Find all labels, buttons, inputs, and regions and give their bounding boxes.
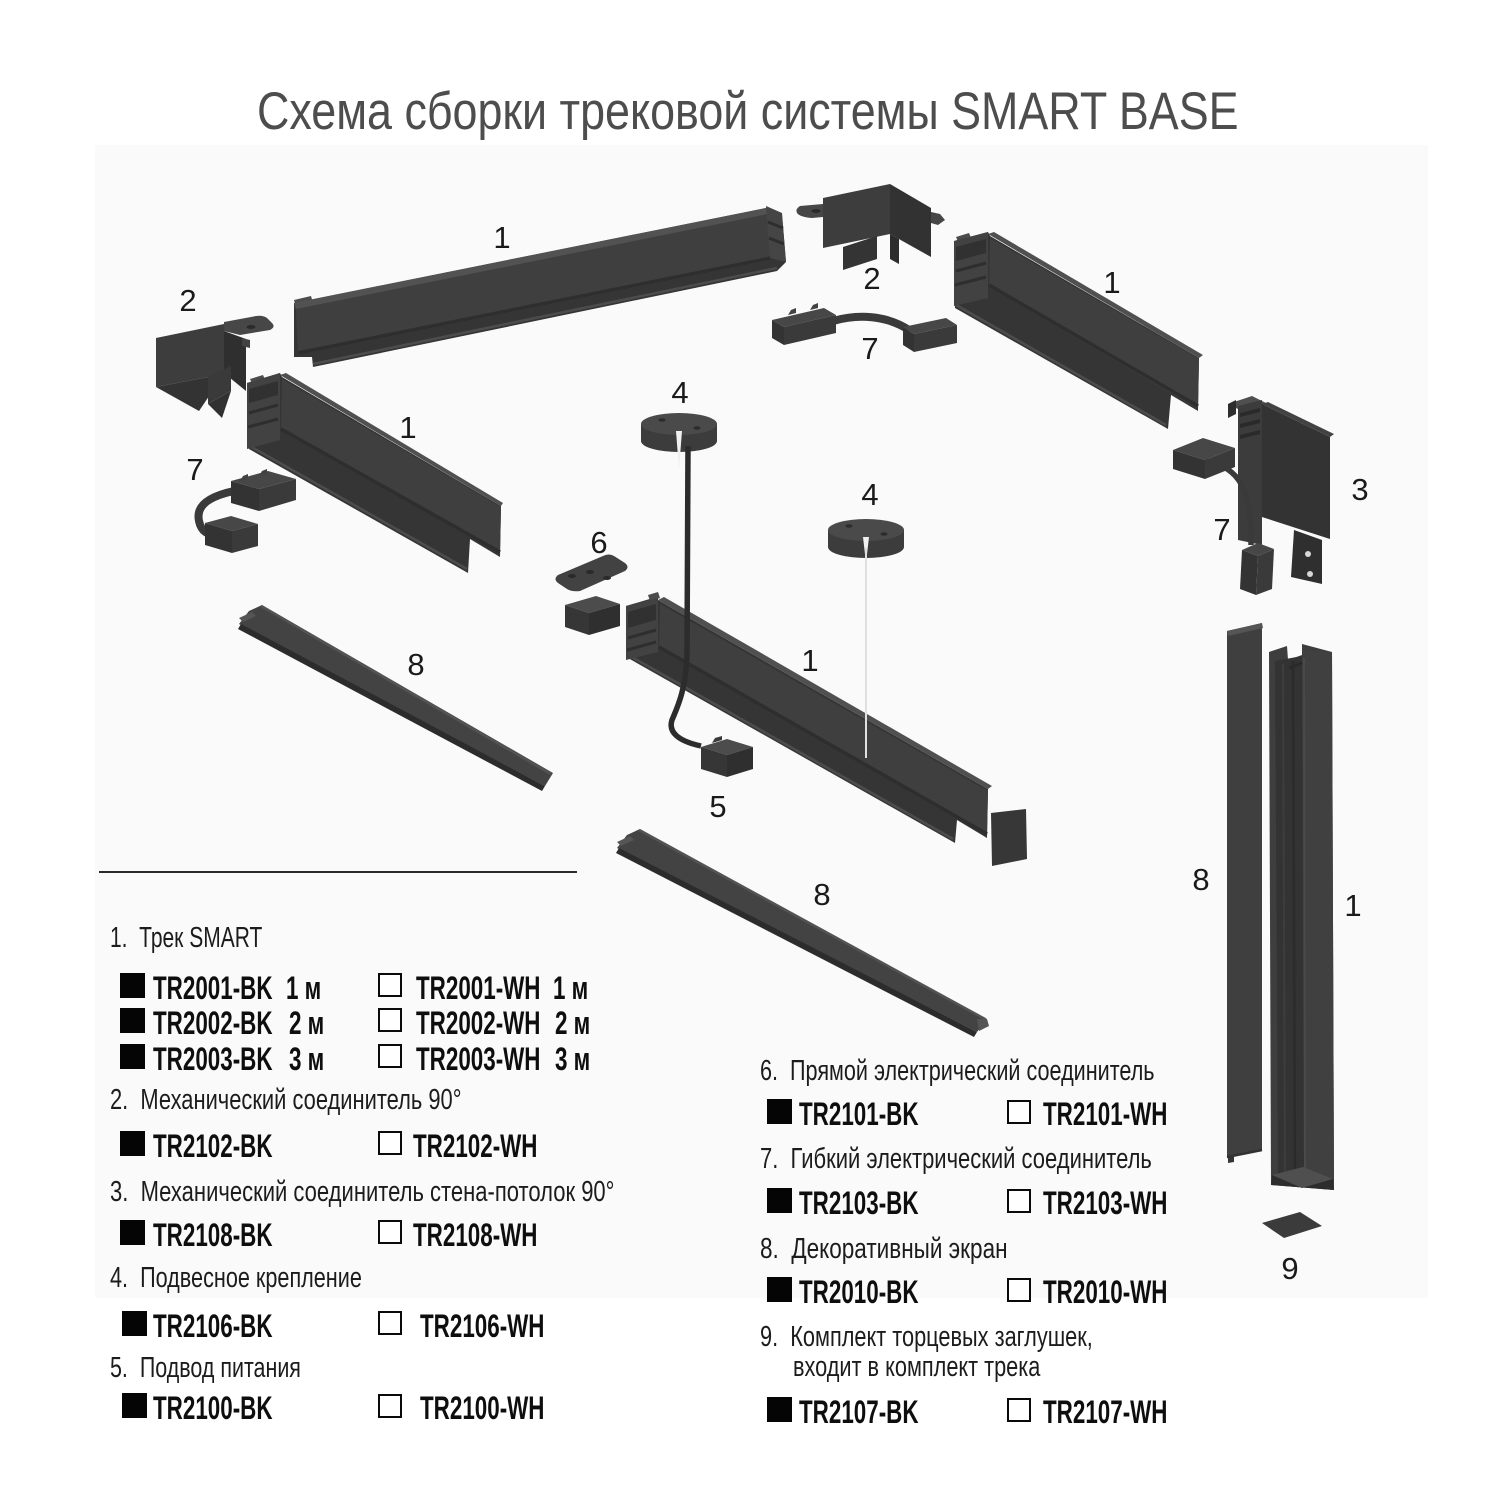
svg-text:2: 2 bbox=[863, 261, 880, 296]
svg-text:8: 8 bbox=[1192, 862, 1209, 897]
svg-text:7: 7 bbox=[1213, 512, 1230, 547]
svg-text:6: 6 bbox=[590, 525, 607, 560]
svg-text:4: 4 bbox=[671, 375, 688, 410]
svg-text:9: 9 bbox=[1281, 1251, 1298, 1286]
svg-text:4: 4 bbox=[861, 477, 878, 512]
svg-text:1: 1 bbox=[1103, 265, 1120, 300]
svg-text:1: 1 bbox=[801, 643, 818, 678]
svg-text:5: 5 bbox=[709, 789, 726, 824]
svg-text:7: 7 bbox=[861, 331, 878, 366]
svg-text:7: 7 bbox=[186, 452, 203, 487]
svg-text:3: 3 bbox=[1351, 472, 1368, 507]
svg-text:1: 1 bbox=[493, 220, 510, 255]
svg-text:2: 2 bbox=[179, 283, 196, 318]
svg-text:1: 1 bbox=[1344, 888, 1361, 923]
svg-text:8: 8 bbox=[407, 647, 424, 682]
svg-text:8: 8 bbox=[813, 877, 830, 912]
svg-text:1: 1 bbox=[399, 410, 416, 445]
